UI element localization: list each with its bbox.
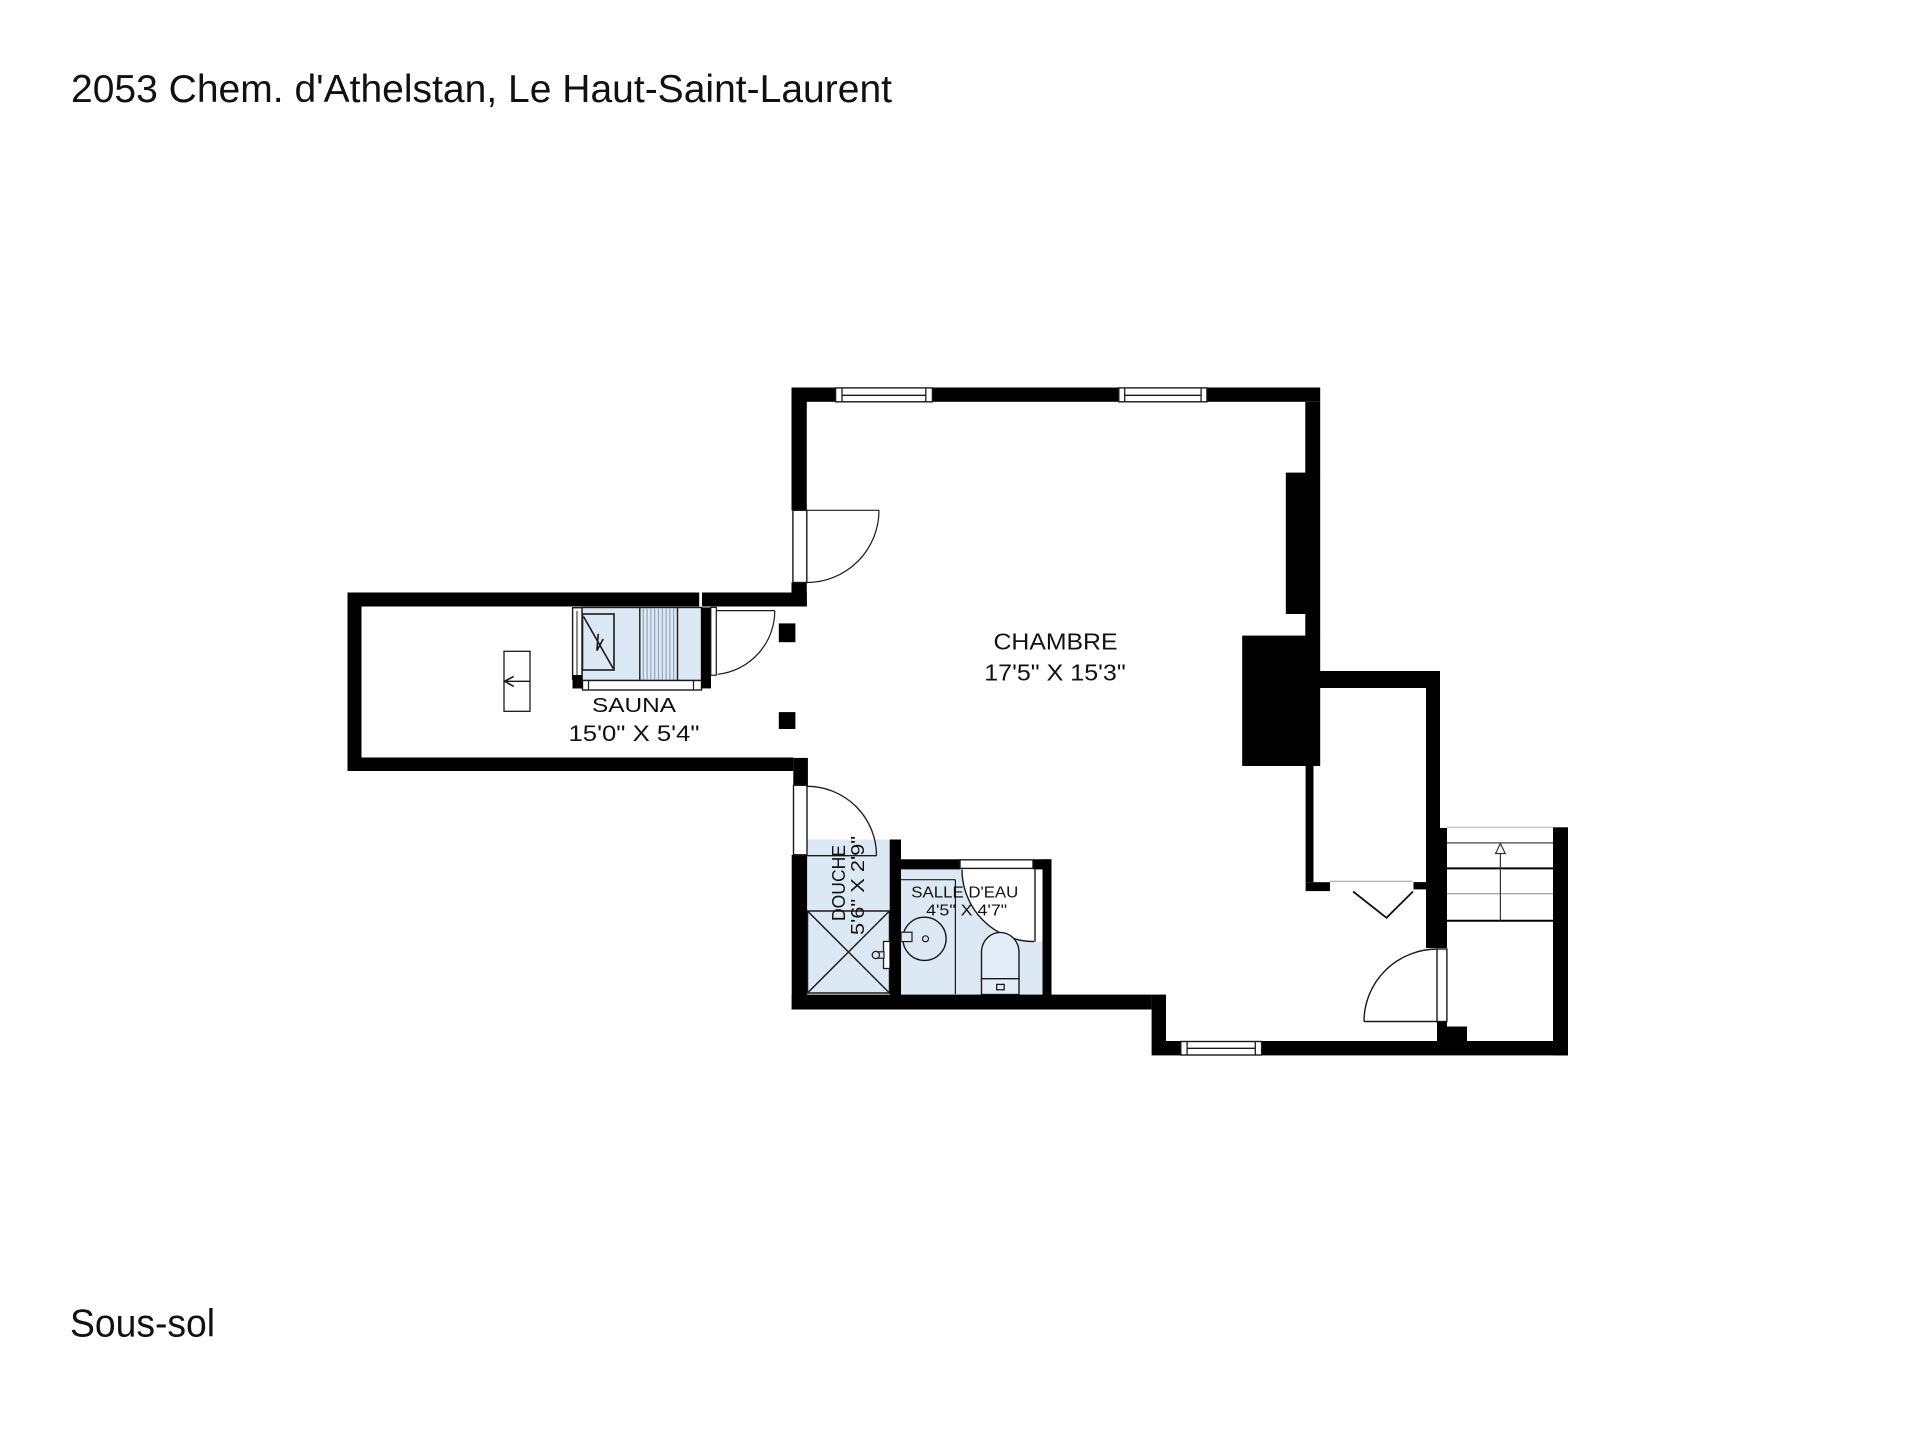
- svg-text:SAUNA: SAUNA: [592, 694, 676, 717]
- svg-text:Sous-sol: Sous-sol: [70, 1303, 215, 1346]
- svg-text:DOUCHE: DOUCHE: [828, 845, 849, 921]
- svg-text:CHAMBRE: CHAMBRE: [994, 629, 1118, 655]
- svg-text:SALLE D'EAU: SALLE D'EAU: [911, 885, 1018, 902]
- svg-text:5'6" X 2'9": 5'6" X 2'9": [847, 836, 868, 935]
- svg-text:4'5" X 4'7": 4'5" X 4'7": [926, 903, 1007, 920]
- svg-text:17'5" X 15'3": 17'5" X 15'3": [984, 660, 1126, 686]
- svg-text:2053 Chem. d'Athelstan, Le Hau: 2053 Chem. d'Athelstan, Le Haut-Saint-La…: [71, 68, 892, 111]
- svg-text:15'0" X 5'4": 15'0" X 5'4": [569, 721, 700, 746]
